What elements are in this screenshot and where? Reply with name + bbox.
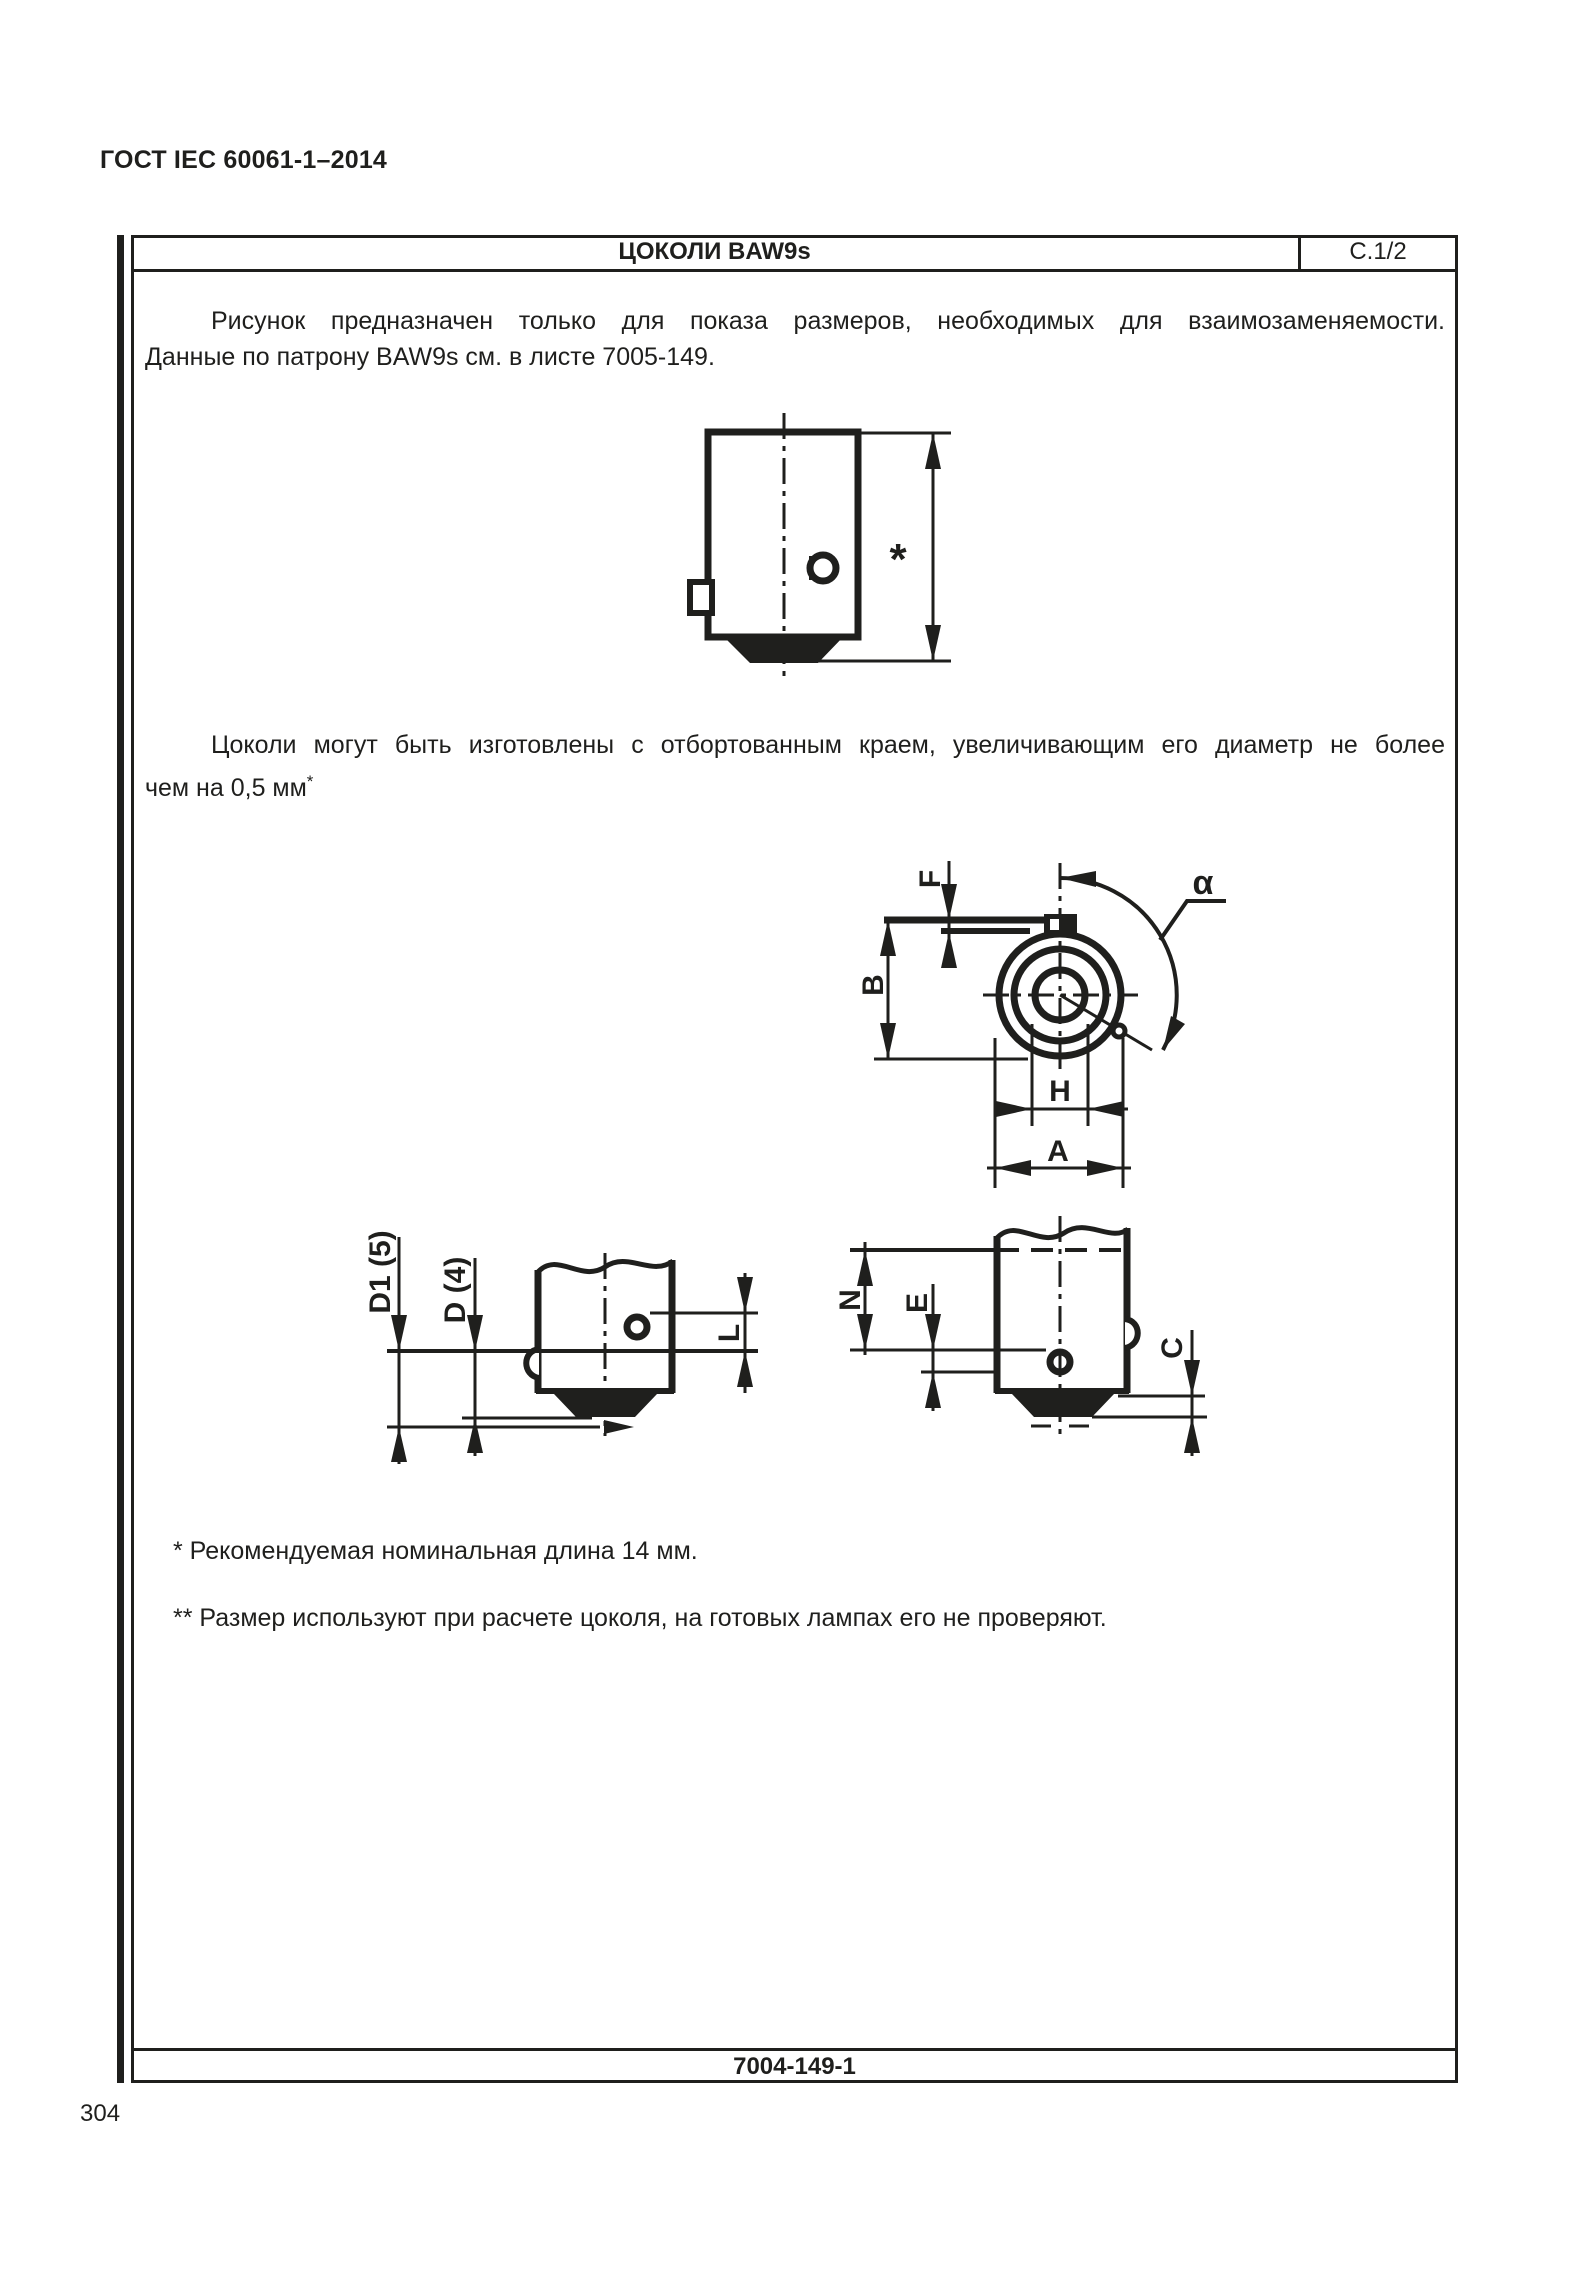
intro-line-1: Рисунок предназначен только для показа р… (145, 309, 1445, 334)
footnote-1: * Рекомендуемая номинальная длина 14 мм. (173, 1539, 698, 1564)
standard-header: ГОСТ IEC 60061-1–2014 (100, 146, 387, 175)
intro-line-2: Данные по патрону BAW9s см. в листе 7005… (145, 345, 715, 370)
sheet-code: С.1/2 (1298, 235, 1455, 269)
page-number: 304 (80, 2100, 120, 2128)
sheet-frame (131, 235, 1458, 2083)
footnote-2: ** Размер используют при расчете цоколя,… (173, 1606, 1107, 1631)
flange-note-line-1: Цоколи могут быть изготовлены с отбортов… (145, 733, 1445, 758)
flange-note-line-2: чем на 0,5 мм* (145, 769, 313, 801)
sheet-title: ЦОКОЛИ BAW9s (131, 235, 1298, 269)
sheet-title-row: ЦОКОЛИ BAW9s С.1/2 (131, 235, 1458, 272)
flange-note-text: чем на 0,5 мм (145, 774, 307, 802)
sheet-edge-bar (117, 235, 124, 2083)
sheet-doc-number: 7004-149-1 (131, 2048, 1458, 2083)
footnote-marker: * (307, 772, 314, 791)
